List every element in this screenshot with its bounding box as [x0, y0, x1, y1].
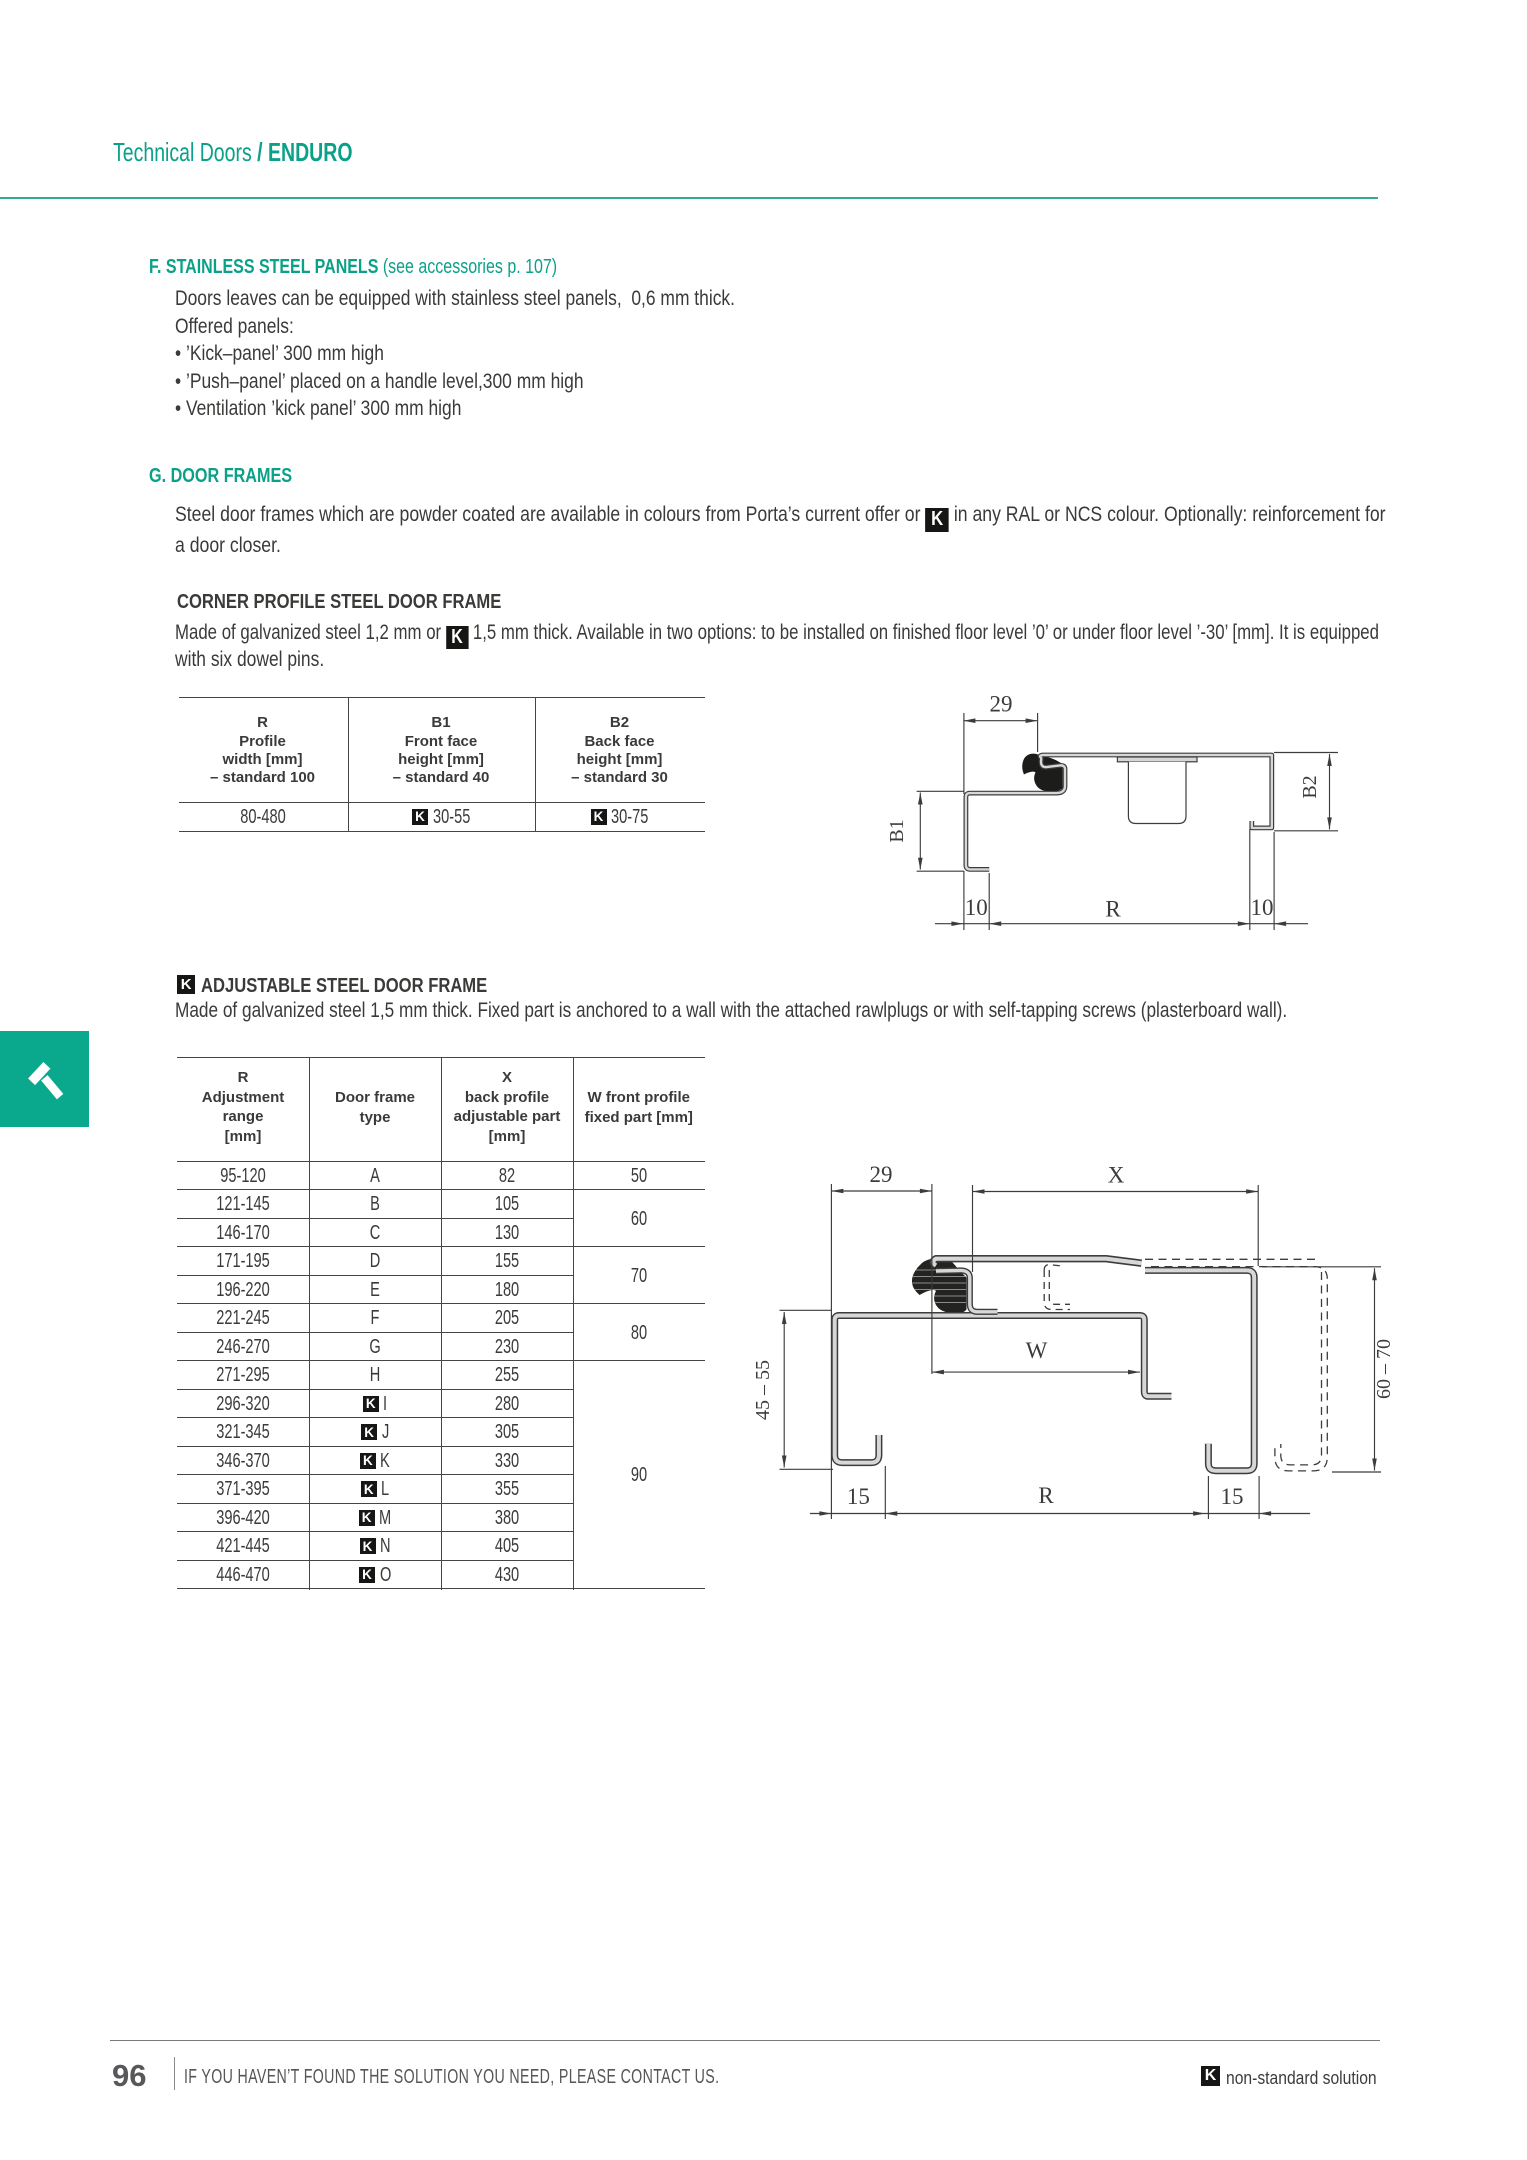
svg-text:15: 15: [1221, 1484, 1244, 1509]
svg-text:10: 10: [965, 895, 988, 920]
svg-text:R: R: [1105, 897, 1121, 922]
svg-text:B2: B2: [1299, 775, 1321, 798]
svg-text:10: 10: [1251, 895, 1274, 920]
svg-text:R: R: [1038, 1483, 1054, 1508]
svg-text:29: 29: [870, 1165, 893, 1187]
svg-text:60 – 70: 60 – 70: [1373, 1339, 1395, 1399]
svg-text:45 – 55: 45 – 55: [755, 1360, 774, 1420]
svg-text:B1: B1: [886, 819, 908, 842]
svg-text:W: W: [1026, 1338, 1048, 1363]
svg-text:29: 29: [990, 692, 1013, 717]
svg-text:15: 15: [847, 1484, 870, 1509]
svg-text:X: X: [1108, 1165, 1125, 1188]
